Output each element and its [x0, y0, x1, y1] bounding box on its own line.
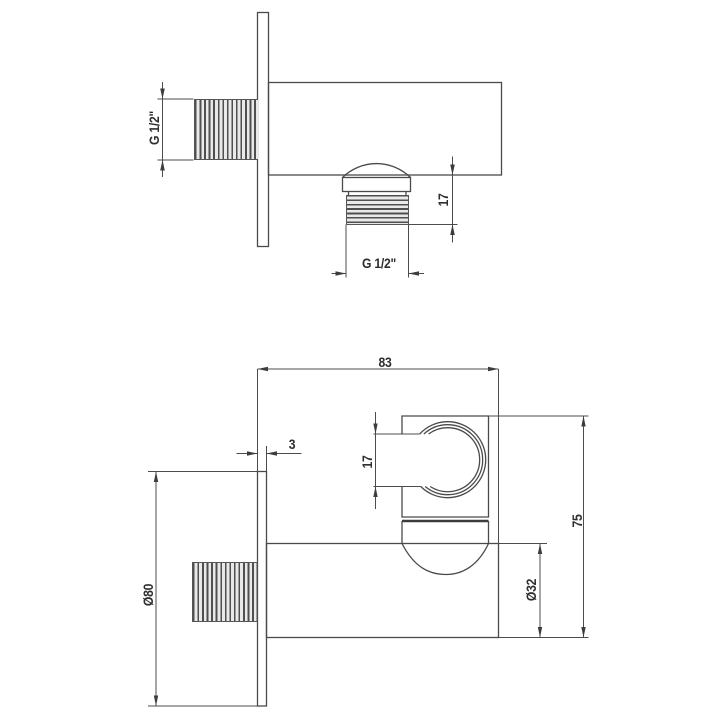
front-valve-body: [267, 544, 499, 638]
front-inlet-thread-hatch: [192, 562, 259, 622]
side-valve-body: [269, 83, 502, 176]
dim-label-front-plate-diameter: Ø80: [140, 584, 156, 606]
side-wall-plate: [258, 13, 269, 247]
side-outlet-thread-hatch: [346, 195, 409, 225]
dim-front-body-diameter: [499, 544, 589, 638]
front-holder-block: [402, 416, 489, 517]
side-inlet-thread-hatch: [194, 99, 258, 160]
drawing-linework: [0, 0, 720, 720]
dim-label-side-outlet-height: 17: [435, 193, 451, 206]
front-view: [148, 367, 589, 706]
dim-label-front-height: 75: [569, 514, 585, 527]
dim-label-side-inlet-thread: G 1/2": [146, 111, 162, 145]
dim-label-side-outlet-thread: G 1/2": [361, 255, 395, 271]
front-wall-plate: [258, 472, 267, 707]
dim-label-front-width: 83: [378, 354, 391, 370]
front-holder-slot-lines: [374, 434, 421, 487]
front-swivel-joint: [402, 521, 489, 575]
dim-label-front-plate-thickness: 3: [288, 436, 295, 452]
front-holder-ring: [420, 422, 486, 498]
dim-side-inlet-thread: [158, 82, 194, 177]
side-outlet-collar-band: [343, 178, 411, 192]
technical-drawing-canvas: G 1/2" 17 G 1/2" 83 3 17 Ø80 Ø32 75: [0, 0, 720, 720]
dim-label-front-holder-slot: 17: [359, 455, 375, 468]
dim-label-front-body-diameter: Ø32: [523, 579, 539, 601]
